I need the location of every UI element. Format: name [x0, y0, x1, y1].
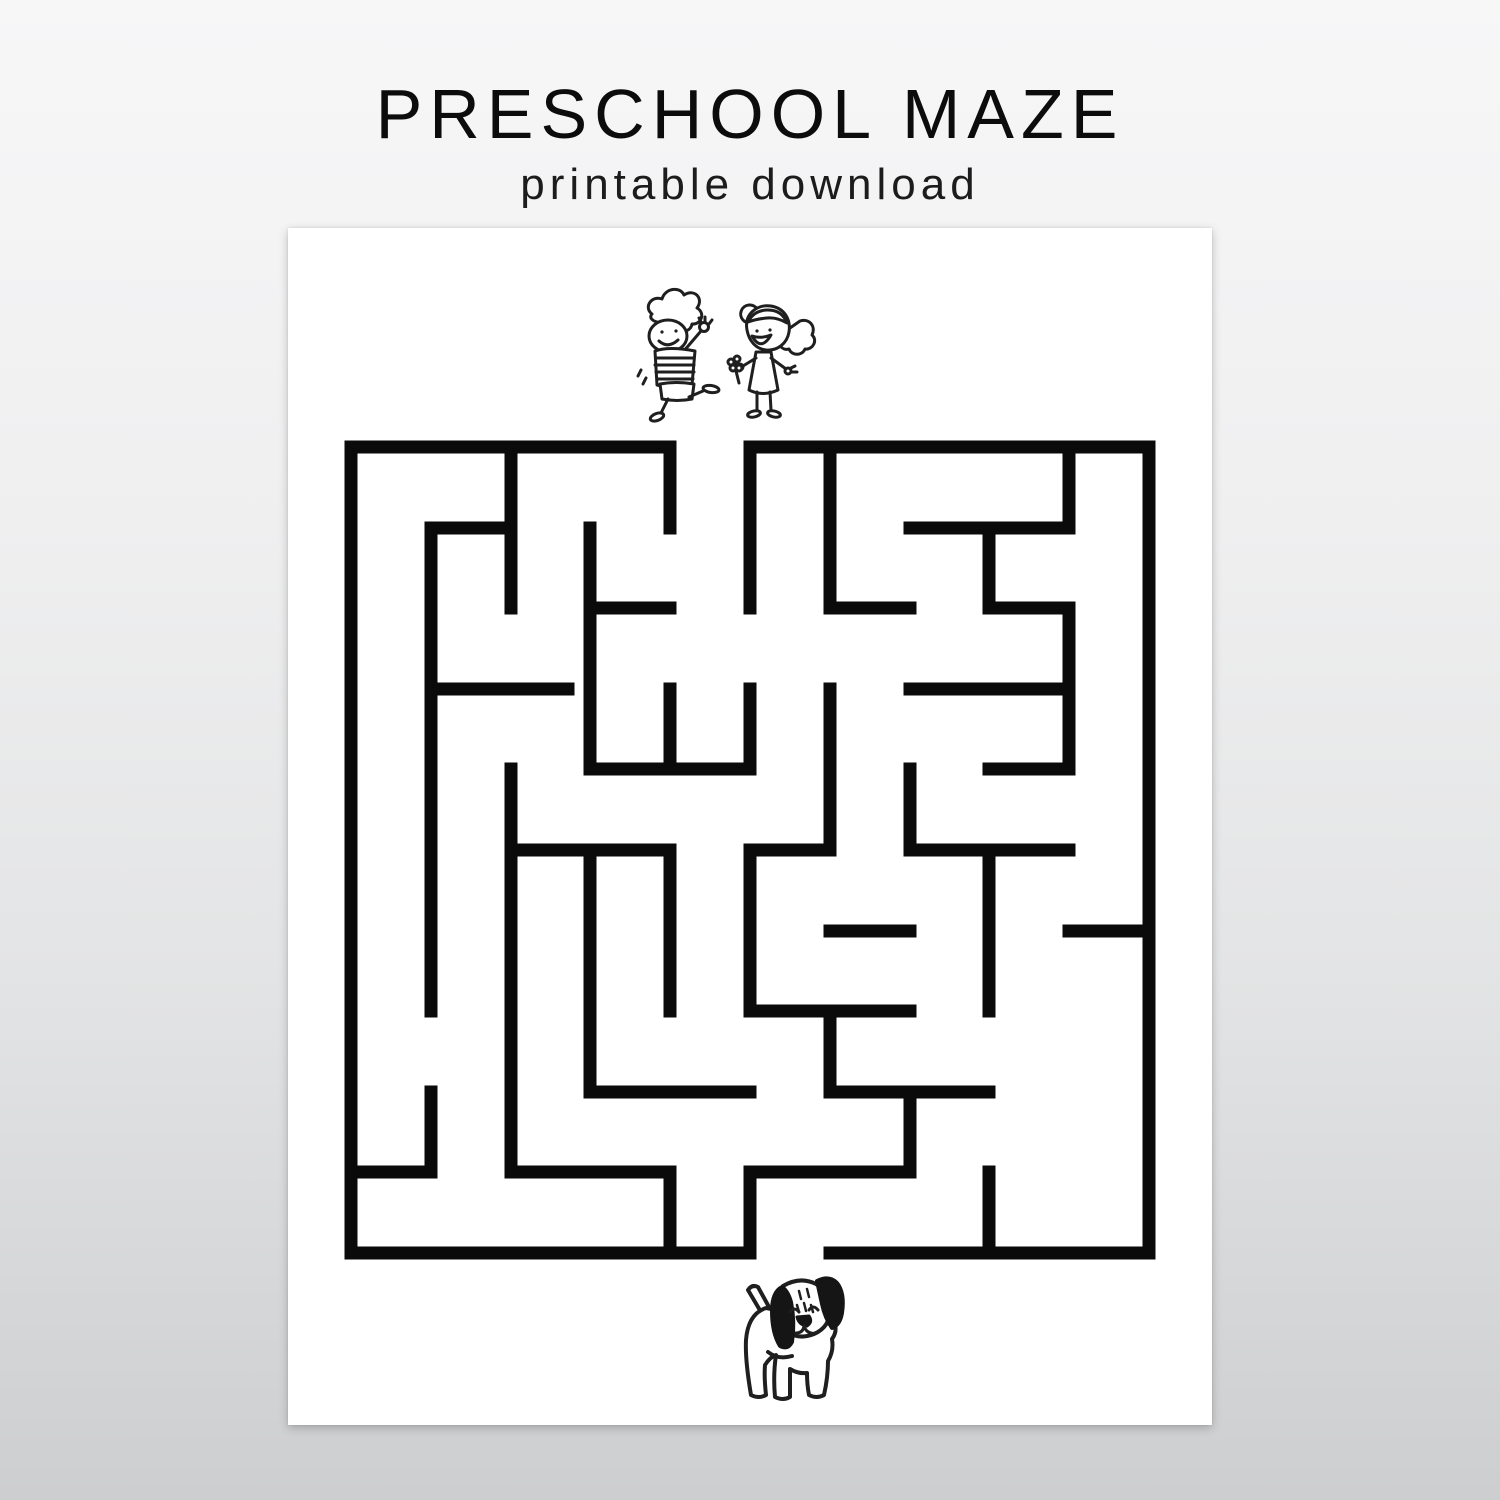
maze-walls: [351, 447, 1149, 1253]
printable-preview: PRESCHOOL MAZE printable download: [0, 0, 1500, 1500]
boy-illustration: [638, 289, 719, 422]
dog-illustration: [746, 1278, 843, 1399]
maze-graphic: [0, 0, 1500, 1500]
screenshot-root: { "header": { "title": "PRESCHOOL MAZE",…: [0, 0, 1500, 1500]
girl-illustration: [728, 305, 815, 418]
